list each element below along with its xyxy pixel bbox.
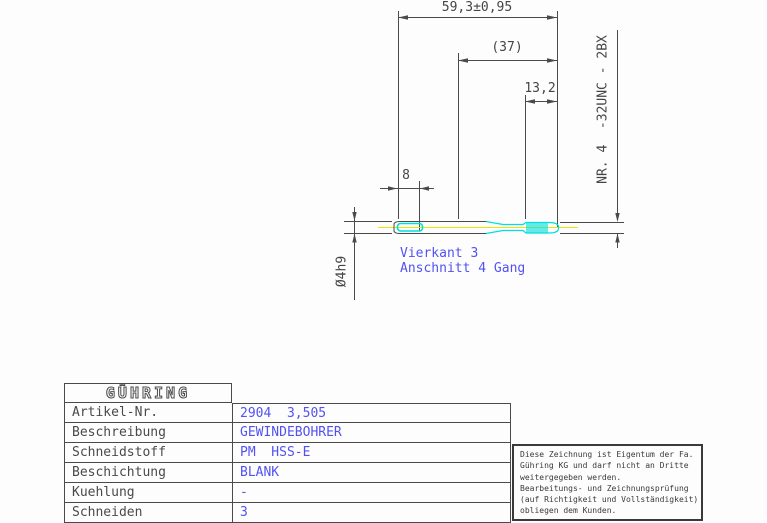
row-value: 2904 3,505 <box>232 403 511 423</box>
row-value: BLANK <box>232 463 511 483</box>
logo-cell: GÜHRING <box>64 383 232 403</box>
title-block-table: GÜHRING Artikel-Nr. 2904 3,505 Beschreib… <box>64 383 511 523</box>
row-label: Schneidstoff <box>64 443 232 463</box>
notice-line: obliegen dem Kunden. <box>520 505 699 516</box>
table-row: Artikel-Nr. 2904 3,505 <box>64 403 511 423</box>
dim-chamfer-length: 13,2 <box>507 82 573 95</box>
table-row: Schneidstoff PM HSS-E <box>64 443 511 463</box>
technical-drawing-page: 59,3±0,95 (37) 13,2 8 Ø4h9 NR. 4 -32UNC … <box>0 0 767 523</box>
row-value: - <box>232 483 511 503</box>
dim-thread-length: (37) <box>457 41 557 54</box>
row-label: Artikel-Nr. <box>64 403 232 423</box>
notice-line: Gühring KG und darf nicht an Dritte <box>520 460 699 471</box>
table-row: Schneiden 3 <box>64 503 511 523</box>
row-value: GEWINDEBOHRER <box>232 423 511 443</box>
dim-shank-diameter: Ø4h9 <box>336 242 349 302</box>
table-row: Beschreibung GEWINDEBOHRER <box>64 423 511 443</box>
row-label: Kuehlung <box>64 483 232 503</box>
notice-line: (auf Richtigkeit und Vollständigkeit) <box>520 494 699 505</box>
dim-square-length: 8 <box>386 169 426 182</box>
thread-designation: NR. 4 -32UNC - 2BX <box>597 20 610 200</box>
table-row: Beschichtung BLANK <box>64 463 511 483</box>
label-square-size: Vierkant 3 <box>400 247 560 260</box>
dim-overall-length: 59,3±0,95 <box>397 1 557 14</box>
row-value: PM HSS-E <box>232 443 511 463</box>
label-chamfer-lead: Anschnitt 4 Gang <box>400 262 580 275</box>
notice-line: weitergegeben werden. <box>520 472 699 483</box>
tap-body <box>378 222 578 234</box>
notice-line: Bearbeitungs- und Zeichnungsprüfung <box>520 483 699 494</box>
row-label: Schneiden <box>64 503 232 523</box>
row-value: 3 <box>232 503 511 523</box>
row-label: Beschreibung <box>64 423 232 443</box>
guehring-logo: GÜHRING <box>106 384 190 402</box>
row-label: Beschichtung <box>64 463 232 483</box>
table-row: Kuehlung - <box>64 483 511 503</box>
notice-line: Diese Zeichnung ist Eigentum der Fa. <box>520 449 699 460</box>
ownership-notice-box: Diese Zeichnung ist Eigentum der Fa. Güh… <box>512 444 703 521</box>
